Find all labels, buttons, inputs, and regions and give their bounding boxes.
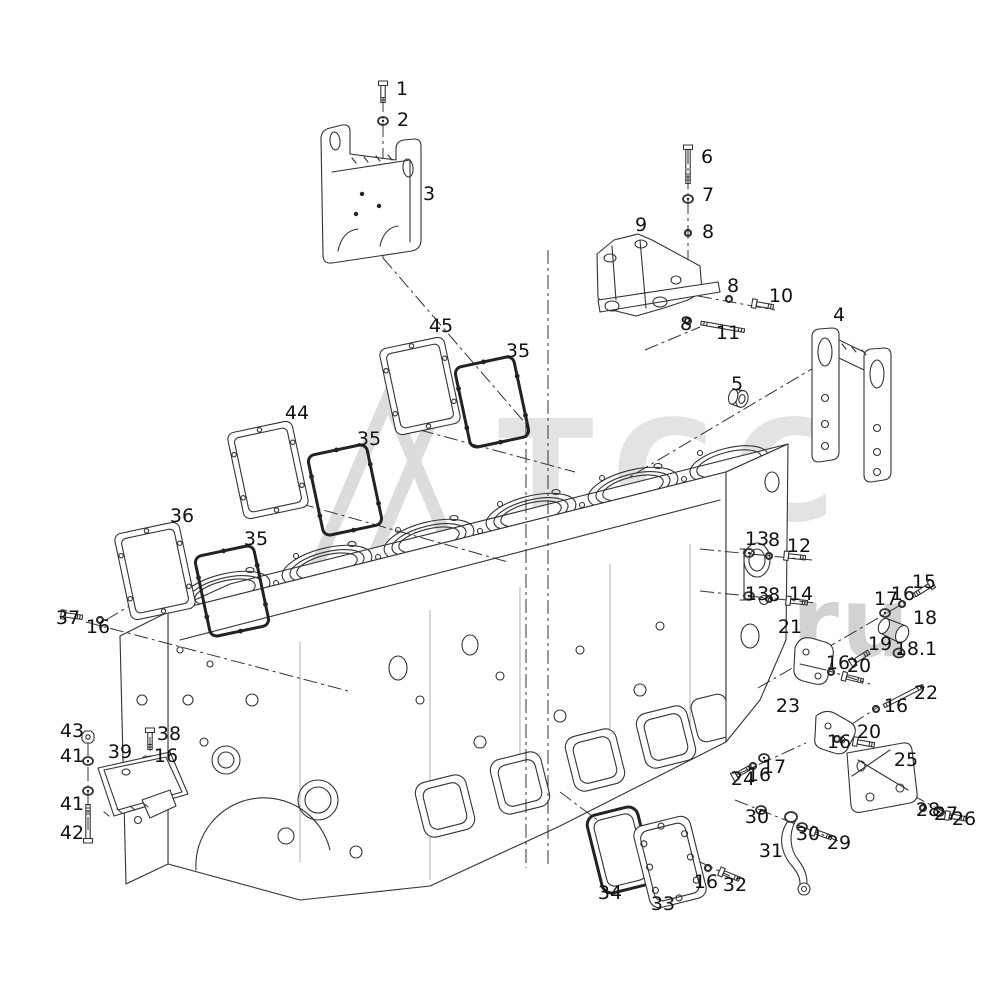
- part-label-13: 13: [745, 528, 769, 550]
- part-label-21: 21: [778, 616, 802, 638]
- part-label-43: 43: [60, 720, 84, 742]
- part-label-42: 42: [60, 822, 84, 844]
- part-label-1: 1: [396, 78, 408, 100]
- part-label-15: 15: [912, 571, 936, 593]
- part-label-16: 16: [86, 616, 110, 638]
- part-label-36: 36: [170, 505, 194, 527]
- part-label-4: 4: [833, 304, 845, 326]
- part-label-2: 2: [397, 109, 409, 131]
- part-36-cover: [114, 521, 197, 621]
- part-label-34: 34: [598, 882, 622, 904]
- part-label-8: 8: [727, 275, 739, 297]
- part-label-30: 30: [745, 806, 769, 828]
- part-label-45: 45: [429, 315, 453, 337]
- part-label-39: 39: [108, 741, 132, 763]
- part-3-bracket: [321, 125, 421, 263]
- part-label-18.1: 18.1: [895, 638, 937, 660]
- exploded-diagram-canvas: ТСС www.tss.ru: [0, 0, 1000, 1000]
- part-label-33: 33: [651, 893, 675, 915]
- part-44-cover: [227, 420, 310, 520]
- part-label-7: 7: [702, 184, 714, 206]
- part-41-washer-a: [83, 757, 93, 765]
- part-9-bracket: [597, 234, 720, 316]
- part-label-17: 17: [874, 588, 898, 610]
- part-label-30: 30: [796, 823, 820, 845]
- part-label-26: 26: [952, 808, 976, 830]
- part-label-20: 20: [857, 721, 881, 743]
- part-label-8: 8: [768, 584, 780, 606]
- part-label-14: 14: [789, 583, 813, 605]
- part-label-6: 6: [701, 146, 713, 168]
- part-label-38: 38: [157, 723, 181, 745]
- part-label-12: 12: [787, 535, 811, 557]
- part-label-9: 9: [635, 214, 647, 236]
- part-label-20: 20: [847, 655, 871, 677]
- part-label-8: 8: [768, 529, 780, 551]
- part-label-16: 16: [694, 871, 718, 893]
- part-label-5: 5: [731, 373, 743, 395]
- part-label-16: 16: [154, 745, 178, 767]
- part-label-8: 8: [680, 313, 692, 335]
- part-label-18: 18: [913, 607, 937, 629]
- part-label-29: 29: [827, 832, 851, 854]
- part-label-16: 16: [884, 695, 908, 717]
- part-label-16: 16: [826, 652, 850, 674]
- part-label-41: 41: [60, 793, 84, 815]
- part-label-41: 41: [60, 745, 84, 767]
- part-label-35: 35: [244, 528, 268, 550]
- part-label-35: 35: [506, 340, 530, 362]
- part-label-11: 11: [716, 322, 740, 344]
- part-label-19: 19: [868, 633, 892, 655]
- part-label-32: 32: [723, 874, 747, 896]
- part-label-37: 37: [56, 607, 80, 629]
- part-label-35: 35: [357, 428, 381, 450]
- part-label-3: 3: [423, 183, 435, 205]
- part-label-16: 16: [747, 764, 771, 786]
- part-label-31: 31: [759, 840, 783, 862]
- part-label-8: 8: [702, 221, 714, 243]
- part-label-16: 16: [827, 731, 851, 753]
- part-label-22: 22: [914, 682, 938, 704]
- part-label-23: 23: [776, 695, 800, 717]
- part-label-25: 25: [894, 749, 918, 771]
- part-16-washer-d: [873, 706, 879, 712]
- part-label-10: 10: [769, 285, 793, 307]
- part-label-44: 44: [285, 402, 309, 424]
- parts-diagram-page: ТСС www.tss.ru: [0, 0, 1000, 1000]
- part-label-13: 13: [745, 583, 769, 605]
